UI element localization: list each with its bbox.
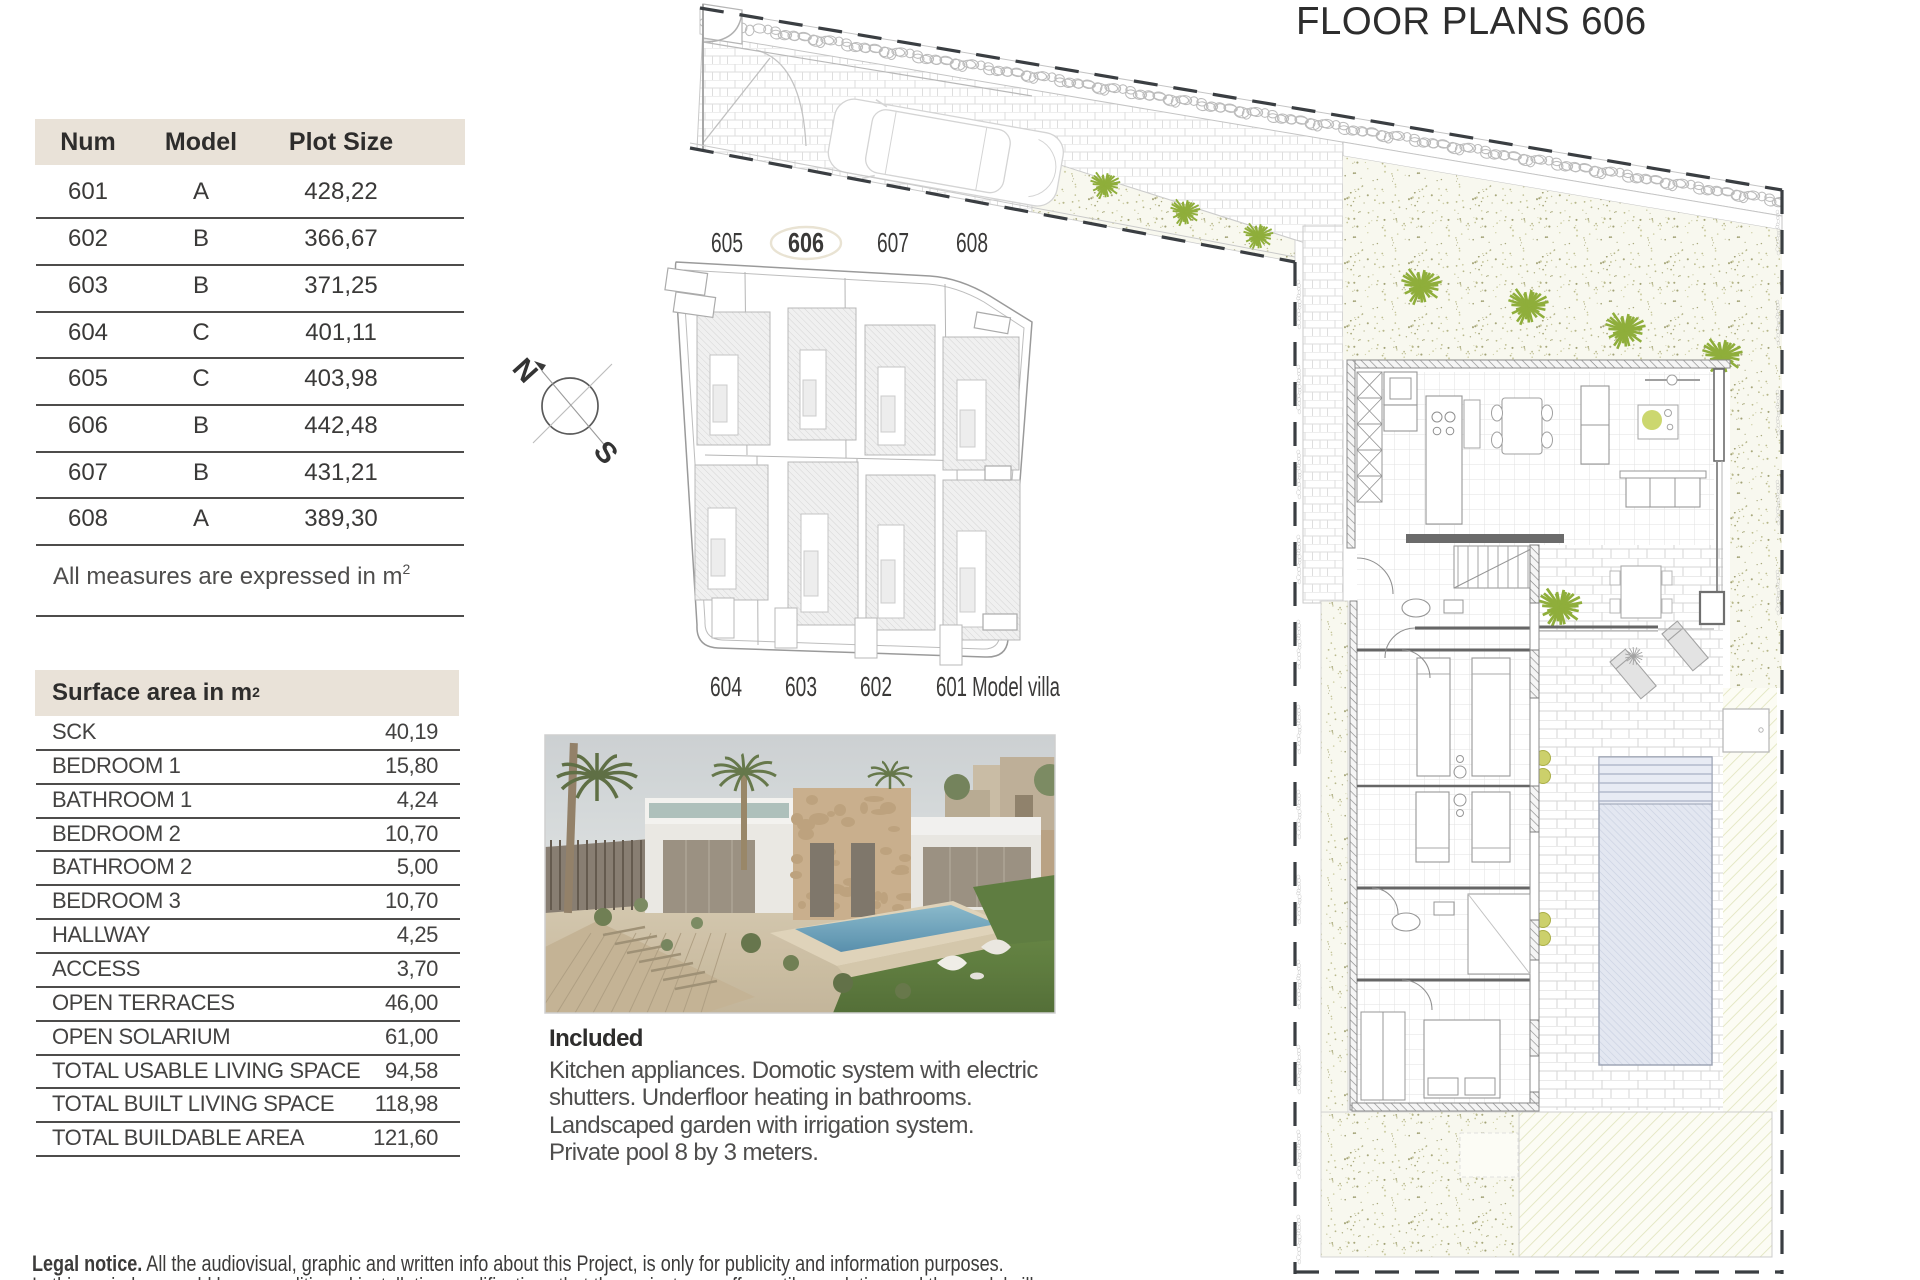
svg-text:606: 606 [788, 227, 824, 258]
svg-text:601 Model villa: 601 Model villa [936, 671, 1060, 702]
svg-text:S: S [587, 435, 624, 471]
svg-text:603: 603 [785, 671, 817, 702]
svg-text:604: 604 [710, 671, 742, 702]
svg-text:608: 608 [956, 227, 988, 258]
svg-text:605: 605 [711, 227, 743, 258]
svg-text:N: N [506, 352, 544, 389]
svg-text:602: 602 [860, 671, 892, 702]
svg-text:607: 607 [877, 227, 909, 258]
